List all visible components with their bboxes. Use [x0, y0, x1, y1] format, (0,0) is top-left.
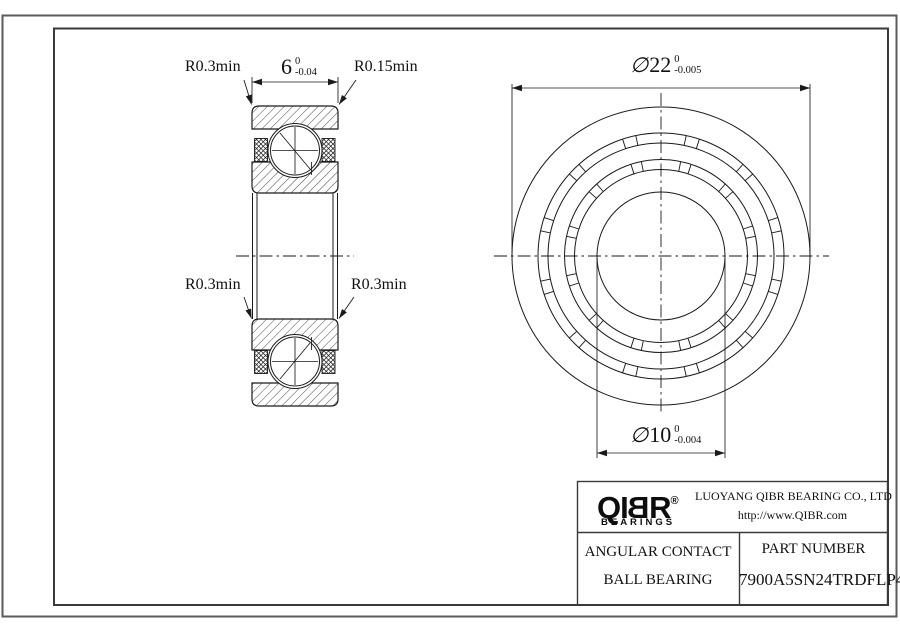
part-number-label: PART NUMBER — [739, 541, 888, 557]
od-lower-tol: -0.005 — [674, 66, 701, 77]
od-upper-tol: 0 — [674, 55, 701, 66]
seal-bottom-right — [322, 351, 335, 374]
diameter-symbol: ∅ — [630, 424, 648, 446]
width-lower-tol: -0.04 — [295, 68, 317, 79]
bore-upper-tol: 0 — [674, 425, 701, 436]
product-type-line1: ANGULAR CONTACT — [577, 544, 739, 560]
bore-value: 10 — [649, 424, 671, 446]
diameter-symbol: ∅ — [630, 54, 648, 76]
bore-lower-tol: -0.004 — [674, 436, 701, 447]
logo-subtext: BEARINGS — [601, 517, 675, 528]
company-name: LUOYANG QIBR BEARING CO., LTD — [695, 490, 890, 503]
radius-label-bottom-right: R0.3min — [351, 276, 407, 294]
company-website: http://www.QIBR.com — [695, 509, 890, 522]
engineering-drawing-sheet: R0.3min R0.15min R0.3min R0.3min 6 0 -0.… — [0, 0, 900, 636]
registered-mark: ® — [671, 495, 679, 507]
width-upper-tol: 0 — [295, 57, 317, 68]
od-value: 22 — [649, 54, 671, 76]
width-dimension: 6 0 -0.04 — [281, 56, 317, 78]
seal-top-right — [322, 139, 335, 162]
part-number-value: 7900A5SN24TRDFLP4 — [739, 571, 888, 589]
seal-top-left — [255, 139, 268, 162]
radius-label-top-right: R0.15min — [354, 58, 418, 76]
bore-dimension: ∅ 10 0 -0.004 — [630, 424, 701, 446]
front-view — [494, 84, 829, 458]
product-type-line2: BALL BEARING — [577, 572, 739, 588]
width-value: 6 — [281, 56, 292, 78]
od-dimension: ∅ 22 0 -0.005 — [630, 54, 701, 76]
radius-label-top-left: R0.3min — [185, 58, 241, 76]
cross-section-view — [236, 77, 354, 406]
sheet-outer-border — [3, 16, 897, 617]
seal-bottom-left — [255, 351, 268, 374]
radius-label-bottom-left: R0.3min — [185, 276, 241, 294]
